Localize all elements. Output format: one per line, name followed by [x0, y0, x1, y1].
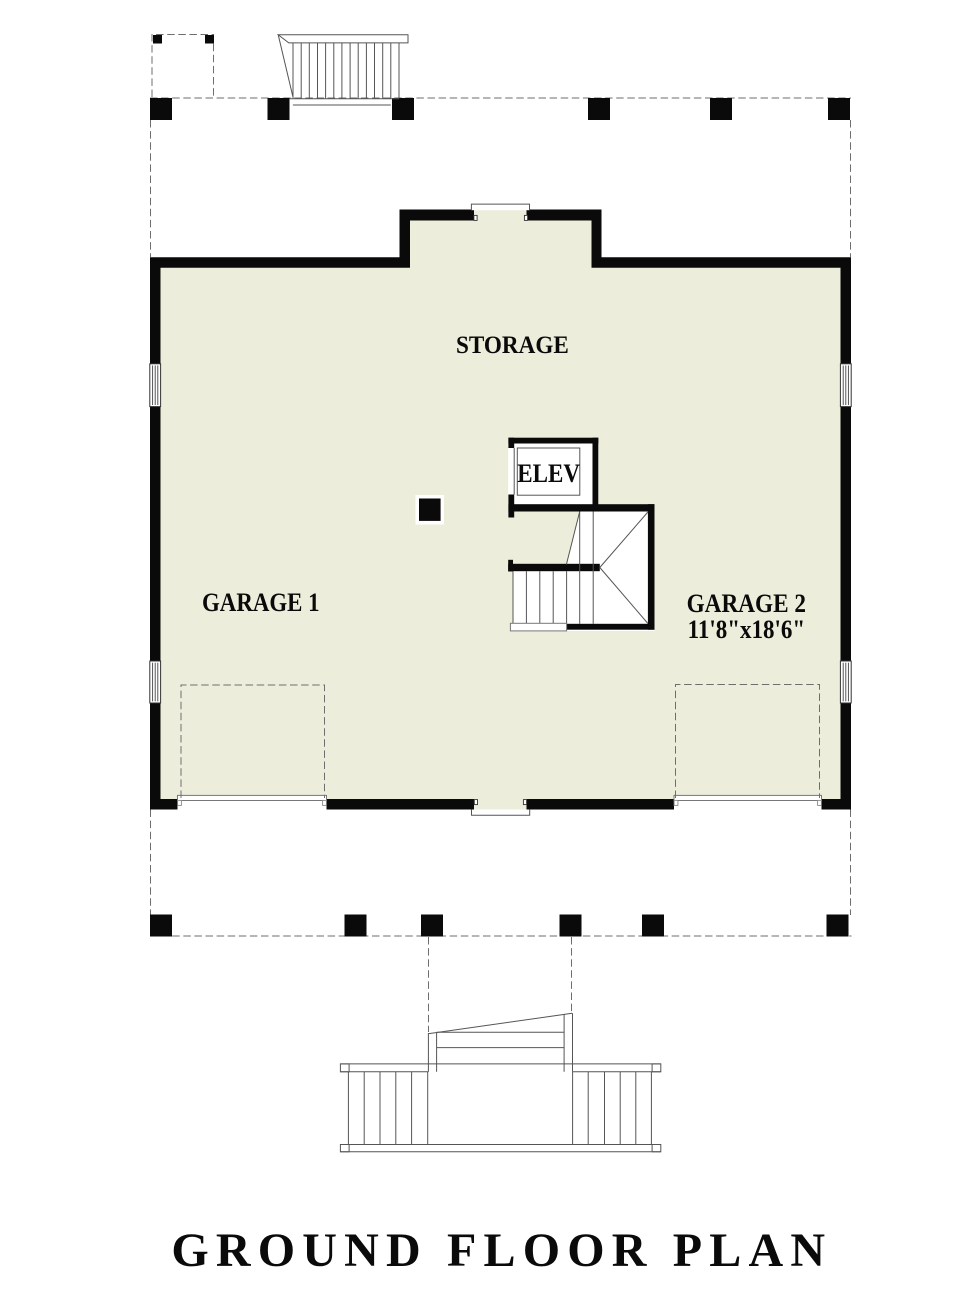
svg-text:GARAGE 2: GARAGE 2 [687, 589, 806, 618]
svg-text:GARAGE 1: GARAGE 1 [202, 588, 320, 617]
svg-text:ELEV: ELEV [517, 459, 580, 488]
svg-text:11'8"x18'6": 11'8"x18'6" [688, 615, 806, 644]
svg-text:STORAGE: STORAGE [456, 332, 569, 359]
svg-text:GROUND FLOOR PLAN: GROUND FLOOR PLAN [171, 1224, 825, 1277]
